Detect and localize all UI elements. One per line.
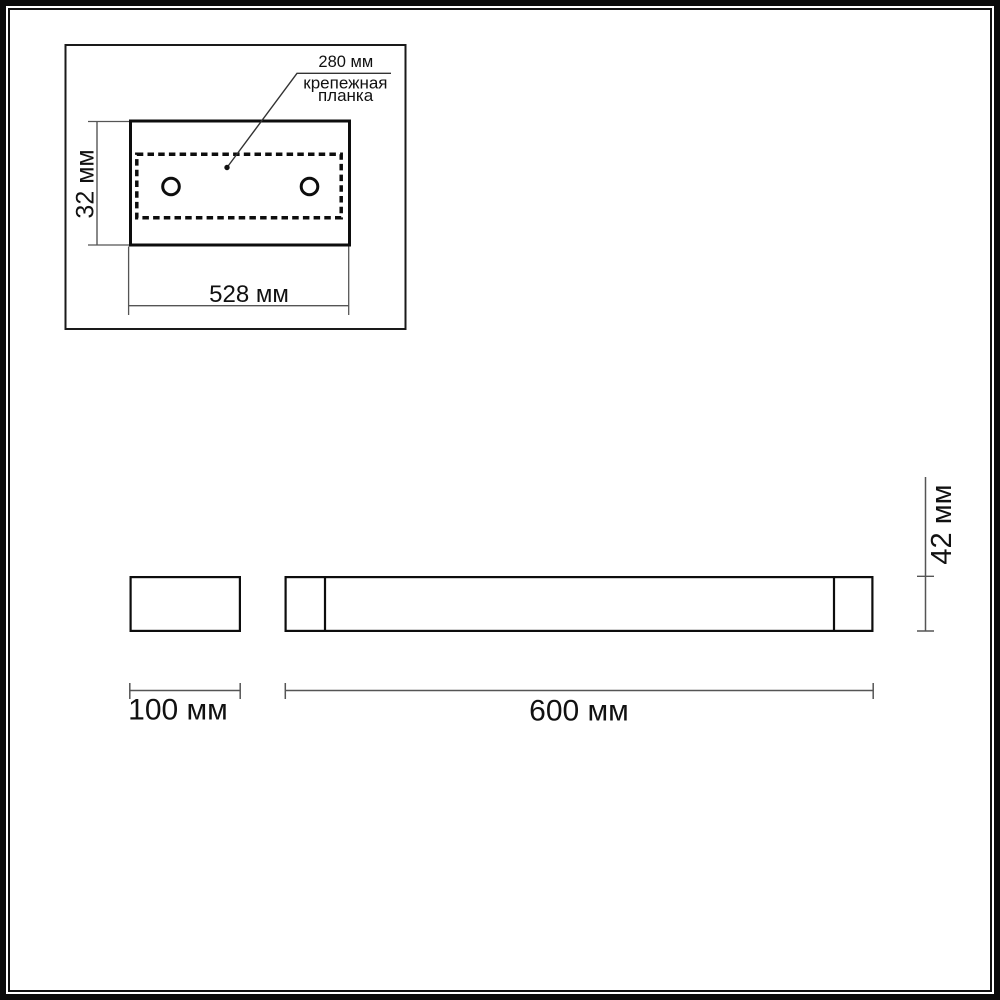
svg-text:планка: планка (318, 86, 374, 105)
svg-text:42 мм: 42 мм (926, 484, 958, 564)
svg-text:100 мм: 100 мм (128, 694, 228, 727)
svg-text:32 мм: 32 мм (72, 149, 100, 218)
svg-text:600 мм: 600 мм (529, 695, 629, 728)
svg-text:528 мм: 528 мм (209, 281, 289, 308)
svg-text:280 мм: 280 мм (318, 53, 373, 71)
